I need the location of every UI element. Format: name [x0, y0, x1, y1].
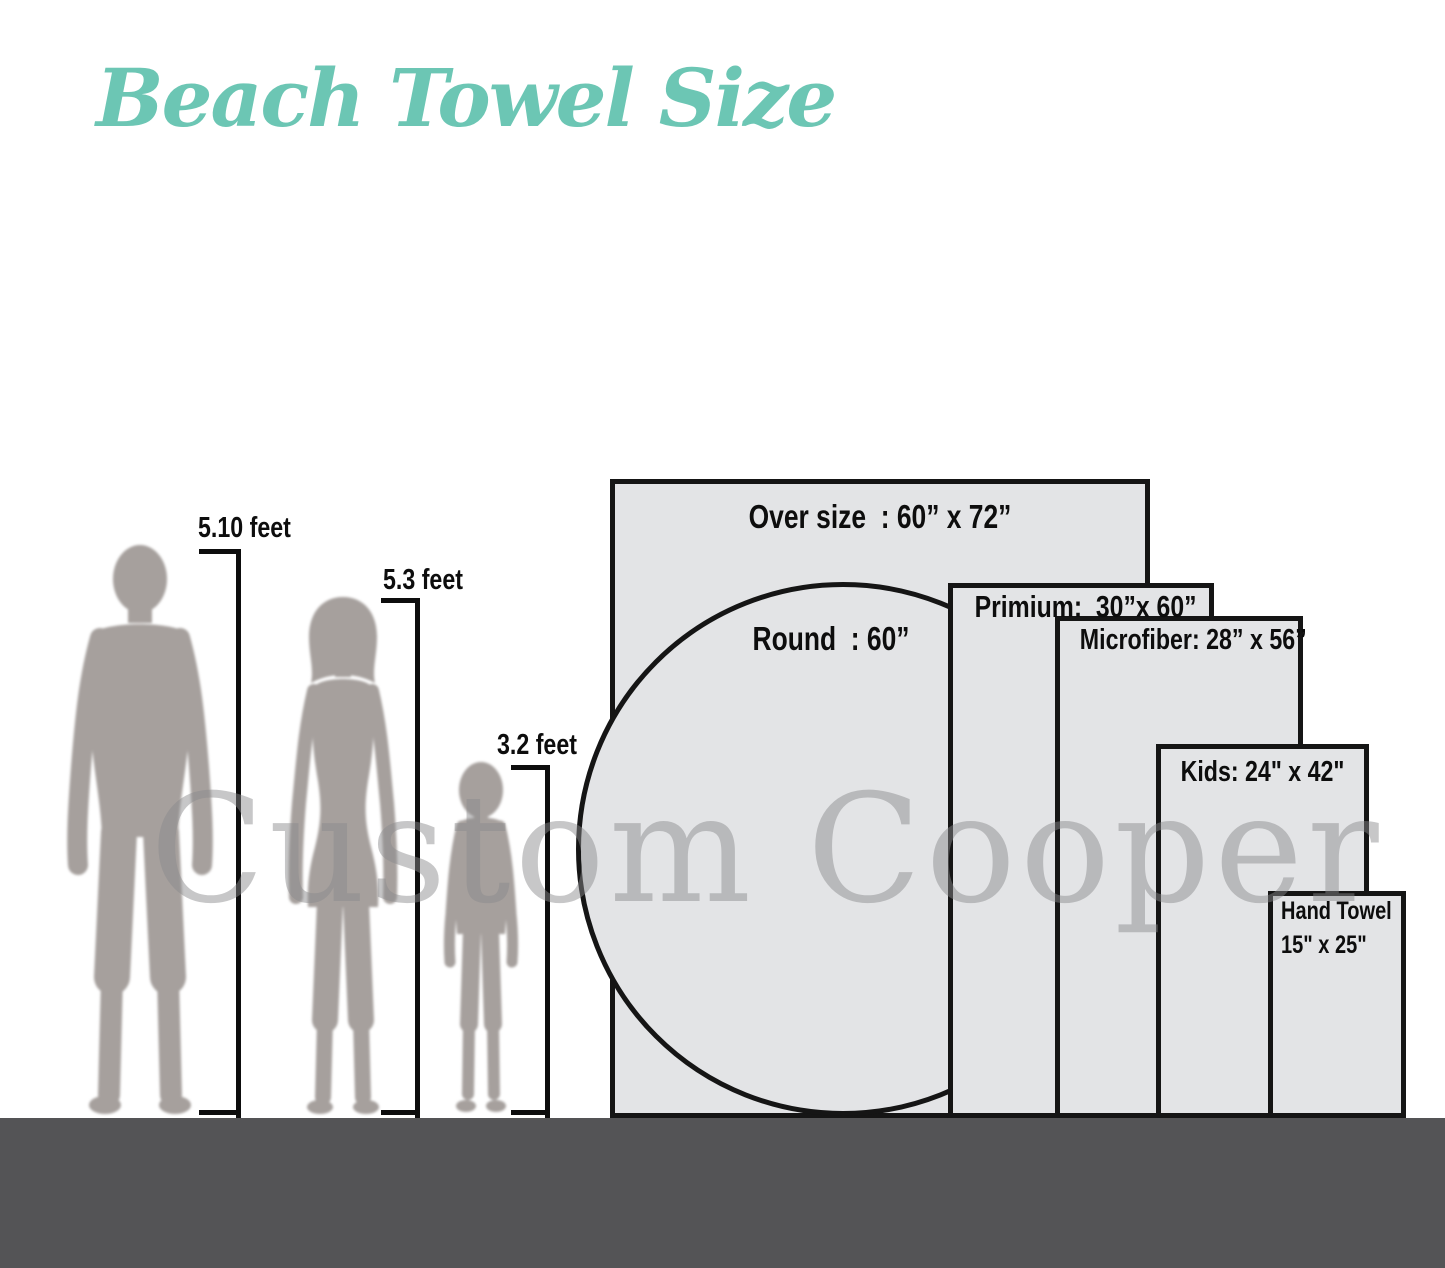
microfiber-towel-label: Microfiber: 28” x 56”	[1080, 626, 1278, 655]
man-bracket-top-line	[199, 549, 241, 554]
page-title: Beach Towel Size	[96, 52, 835, 144]
child-height-label: 3.2 feet	[497, 731, 577, 760]
man-silhouette-icon	[45, 545, 235, 1117]
child-silhouette-icon	[428, 762, 535, 1117]
round-towel-label: Round : 60”	[627, 622, 1035, 655]
woman-bracket-vertical-line	[415, 598, 420, 1118]
woman-silhouette-icon	[262, 595, 425, 1117]
hand-towel-label-line2: 15" x 25"	[1281, 933, 1367, 958]
woman-bracket-bottom-line	[381, 1110, 420, 1115]
man-bracket-bottom-line	[199, 1110, 241, 1115]
oversize-towel-label: Over size : 60” x 72”	[664, 500, 1096, 533]
child-bracket-bottom-line	[511, 1110, 550, 1115]
beach-towel-size-infographic: Beach Towel Size	[0, 0, 1445, 1268]
man-height-label: 5.10 feet	[198, 514, 291, 543]
hand-towel-rect	[1268, 891, 1406, 1118]
child-bracket-vertical-line	[545, 765, 550, 1118]
hand-towel-label-line1: Hand Towel	[1281, 899, 1392, 924]
premium-towel-label: Primium: 30”x 60”	[975, 591, 1188, 622]
man-bracket-vertical-line	[236, 549, 241, 1118]
woman-height-label: 5.3 feet	[383, 566, 463, 595]
kids-towel-label: Kids: 24" x 42"	[1177, 758, 1347, 787]
ground-bar	[0, 1118, 1445, 1268]
